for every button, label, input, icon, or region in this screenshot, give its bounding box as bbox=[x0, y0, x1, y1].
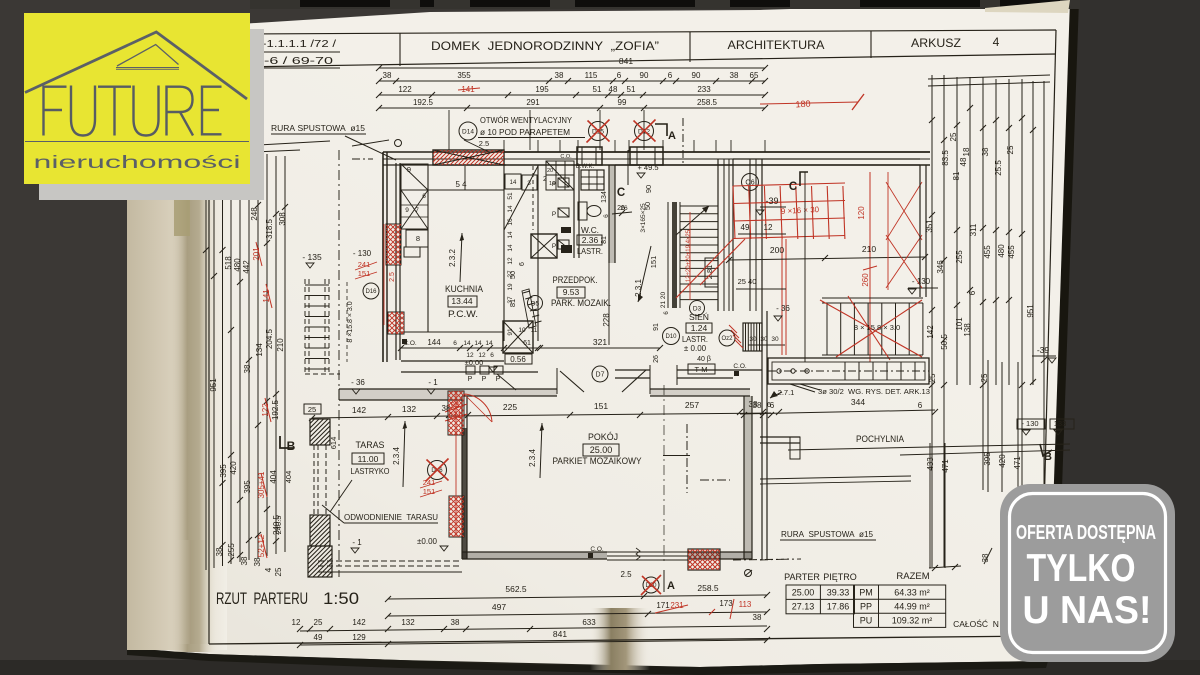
svg-text:20: 20 bbox=[547, 168, 553, 174]
svg-text:318.5: 318.5 bbox=[265, 218, 274, 239]
svg-text:- 130: - 130 bbox=[912, 277, 931, 286]
svg-text:442: 442 bbox=[242, 260, 251, 274]
svg-text:433: 433 bbox=[926, 457, 935, 471]
svg-text:PARKIET MOZAIKOWY: PARKIET MOZAIKOWY bbox=[553, 456, 642, 466]
svg-text:2.5: 2.5 bbox=[389, 272, 396, 282]
svg-text:420: 420 bbox=[998, 454, 1007, 468]
svg-text:RURA SPUSTOWA ø15: RURA SPUSTOWA ø15 bbox=[781, 529, 873, 539]
svg-text:471: 471 bbox=[1013, 456, 1022, 470]
svg-text:90: 90 bbox=[644, 185, 653, 193]
svg-text:192.5: 192.5 bbox=[413, 98, 434, 107]
svg-text:14: 14 bbox=[485, 340, 493, 347]
svg-text:25 40: 25 40 bbox=[738, 277, 757, 286]
svg-text:D10: D10 bbox=[665, 334, 677, 340]
svg-text:nieruchomości: nieruchomości bbox=[34, 152, 241, 172]
svg-text:- 130: - 130 bbox=[1021, 419, 1038, 428]
svg-text:395: 395 bbox=[219, 464, 228, 478]
svg-text:64.33 m²: 64.33 m² bbox=[894, 588, 930, 598]
svg-text:132: 132 bbox=[401, 618, 415, 627]
svg-text:951: 951 bbox=[209, 378, 218, 392]
svg-text:RAZEM: RAZEM bbox=[896, 571, 929, 582]
svg-text:POKÓJ: POKÓJ bbox=[588, 432, 618, 443]
svg-text:83.5: 83.5 bbox=[941, 150, 950, 166]
svg-text:16: 16 bbox=[507, 218, 514, 226]
svg-text:⌜-1.1.1.1 /72 /: ⌜-1.1.1.1 /72 / bbox=[256, 39, 336, 50]
svg-text:C.O.: C.O. bbox=[590, 546, 604, 553]
svg-text:120: 120 bbox=[857, 206, 866, 220]
svg-text:455: 455 bbox=[1007, 245, 1016, 259]
svg-text:P.C.W.: P.C.W. bbox=[448, 309, 478, 319]
svg-text:OTWÓR WENTYLACYJNY: OTWÓR WENTYLACYJNY bbox=[480, 115, 572, 125]
svg-text:± 0.00: ± 0.00 bbox=[684, 344, 707, 353]
svg-text:- 135: - 135 bbox=[302, 252, 322, 262]
svg-text:841: 841 bbox=[553, 629, 567, 639]
svg-text:- 130: - 130 bbox=[353, 249, 372, 258]
svg-text:49: 49 bbox=[314, 633, 323, 642]
svg-text:6: 6 bbox=[453, 340, 457, 347]
svg-text:14: 14 bbox=[474, 340, 482, 347]
svg-text:D7: D7 bbox=[596, 372, 605, 379]
svg-text:25: 25 bbox=[274, 567, 283, 576]
svg-text:173: 173 bbox=[719, 599, 733, 608]
svg-text:228: 228 bbox=[602, 313, 611, 327]
svg-text:195: 195 bbox=[535, 85, 549, 94]
svg-text:38: 38 bbox=[253, 557, 262, 566]
svg-text:±0.00: ±0.00 bbox=[417, 537, 438, 546]
svg-text:38: 38 bbox=[451, 618, 460, 627]
svg-text:132: 132 bbox=[402, 404, 416, 414]
svg-text:6: 6 bbox=[422, 193, 426, 200]
svg-text:204.5: 204.5 bbox=[265, 328, 274, 349]
svg-text:344: 344 bbox=[851, 397, 865, 407]
svg-text:P: P bbox=[552, 243, 556, 250]
svg-text:258.5: 258.5 bbox=[697, 583, 719, 593]
svg-text:38: 38 bbox=[240, 556, 249, 565]
svg-text:248: 248 bbox=[250, 207, 259, 221]
svg-text:25: 25 bbox=[949, 132, 958, 141]
svg-text:POCHYLNIA: POCHYLNIA bbox=[856, 434, 904, 444]
svg-text:65: 65 bbox=[750, 71, 759, 80]
svg-text:P: P bbox=[482, 376, 487, 383]
svg-text:133: 133 bbox=[1054, 419, 1067, 428]
svg-text:38: 38 bbox=[243, 364, 252, 373]
svg-text:RZUT PARTERU: RZUT PARTERU bbox=[216, 589, 308, 608]
svg-text:U NAS!: U NAS! bbox=[1023, 589, 1152, 632]
svg-text:257: 257 bbox=[685, 400, 699, 410]
svg-text:- 1: - 1 bbox=[352, 538, 362, 547]
svg-text:14: 14 bbox=[507, 244, 514, 252]
svg-text:8: 8 bbox=[416, 234, 420, 243]
svg-text:14: 14 bbox=[463, 340, 471, 347]
svg-text:255: 255 bbox=[227, 543, 236, 557]
svg-text:0.56: 0.56 bbox=[510, 355, 526, 364]
svg-text:9: 9 bbox=[405, 207, 409, 214]
svg-text:12: 12 bbox=[292, 618, 301, 627]
svg-text:25: 25 bbox=[1006, 145, 1015, 154]
svg-text:PM: PM bbox=[859, 588, 873, 598]
svg-text:-39: -39 bbox=[765, 196, 778, 206]
svg-text:48: 48 bbox=[959, 157, 968, 166]
svg-text:TYLKO: TYLKO bbox=[1027, 547, 1136, 590]
svg-text:RURA SPUSTOWA ø15: RURA SPUSTOWA ø15 bbox=[271, 123, 365, 133]
svg-text:A: A bbox=[667, 580, 675, 592]
svg-text:- 36: - 36 bbox=[776, 304, 790, 313]
svg-text:TARAS: TARAS bbox=[356, 440, 385, 450]
svg-text:CAŁOŚĆ N: CAŁOŚĆ N bbox=[953, 618, 999, 629]
svg-text:B: B bbox=[287, 439, 296, 453]
svg-text:134: 134 bbox=[601, 191, 608, 203]
svg-text:4: 4 bbox=[993, 35, 1000, 49]
svg-text:38: 38 bbox=[749, 400, 758, 409]
svg-text:2.3.2: 2.3.2 bbox=[448, 249, 457, 267]
svg-text:241: 241 bbox=[423, 478, 436, 487]
svg-text:25: 25 bbox=[308, 405, 316, 414]
svg-text:129: 129 bbox=[352, 633, 366, 642]
svg-text:2.36: 2.36 bbox=[582, 235, 599, 245]
svg-text:14: 14 bbox=[549, 181, 555, 187]
svg-text:109.32 m²: 109.32 m² bbox=[892, 616, 933, 626]
svg-text:471: 471 bbox=[941, 459, 950, 473]
svg-text:291: 291 bbox=[526, 98, 540, 107]
svg-text:18: 18 bbox=[962, 147, 971, 156]
svg-text:51: 51 bbox=[593, 85, 602, 94]
svg-text:151: 151 bbox=[594, 401, 608, 411]
svg-text:D3: D3 bbox=[693, 305, 702, 312]
svg-text:151: 151 bbox=[358, 269, 371, 278]
svg-text:6: 6 bbox=[617, 71, 622, 80]
svg-text:PARK. MOZAIK.: PARK. MOZAIK. bbox=[551, 298, 611, 308]
svg-text:210: 210 bbox=[862, 244, 876, 254]
svg-text:14: 14 bbox=[507, 231, 514, 239]
svg-text:3×165×25: 3×165×25 bbox=[640, 203, 647, 233]
svg-text:12÷20+20+19.4×25: 12÷20+20+19.4×25 bbox=[686, 229, 692, 282]
svg-text:171: 171 bbox=[656, 601, 670, 610]
svg-text:12: 12 bbox=[764, 223, 773, 232]
svg-text:ø 10 POD PARAPETEM: ø 10 POD PARAPETEM bbox=[480, 127, 570, 137]
svg-text:518: 518 bbox=[224, 256, 233, 270]
svg-text:480: 480 bbox=[233, 258, 242, 272]
svg-text:40 β: 40 β bbox=[697, 356, 711, 363]
svg-text:480: 480 bbox=[997, 244, 1006, 258]
svg-text:44.99 m²: 44.99 m² bbox=[894, 602, 930, 612]
svg-text:2.3.4: 2.3.4 bbox=[392, 447, 401, 465]
svg-text:497: 497 bbox=[492, 602, 506, 612]
svg-text:OFERTA DOSTĘPNA: OFERTA DOSTĘPNA bbox=[1016, 522, 1156, 544]
svg-text:115: 115 bbox=[585, 71, 598, 80]
svg-text:±0.00: ±0.00 bbox=[465, 358, 484, 367]
svg-text:61: 61 bbox=[523, 340, 531, 347]
svg-text:81: 81 bbox=[952, 171, 961, 180]
svg-text:51: 51 bbox=[507, 192, 514, 200]
svg-text:240.5: 240.5 bbox=[274, 516, 283, 535]
svg-text:38: 38 bbox=[753, 613, 762, 622]
svg-text:138: 138 bbox=[963, 323, 972, 337]
svg-text:142: 142 bbox=[352, 405, 366, 415]
svg-text:2.5: 2.5 bbox=[479, 139, 489, 148]
svg-text:99: 99 bbox=[618, 98, 627, 107]
svg-text:90: 90 bbox=[692, 71, 701, 80]
svg-text:KUCHNIA: KUCHNIA bbox=[445, 284, 483, 294]
svg-text:395: 395 bbox=[243, 480, 252, 494]
svg-text:38: 38 bbox=[383, 71, 392, 80]
svg-text:12: 12 bbox=[507, 257, 514, 265]
svg-text:38: 38 bbox=[555, 71, 564, 80]
svg-text:6: 6 bbox=[767, 400, 771, 409]
svg-text:30: 30 bbox=[771, 336, 779, 343]
svg-text:200: 200 bbox=[770, 245, 784, 255]
svg-text:25.5: 25.5 bbox=[994, 160, 1003, 176]
svg-text:395: 395 bbox=[983, 452, 992, 466]
svg-text:38: 38 bbox=[215, 547, 224, 556]
svg-text:311: 311 bbox=[969, 223, 978, 236]
svg-text:P: P bbox=[468, 376, 473, 383]
svg-text:11: 11 bbox=[531, 327, 538, 334]
svg-text:1:50: 1:50 bbox=[323, 589, 359, 608]
svg-text:50.5: 50.5 bbox=[940, 334, 949, 350]
svg-text:91: 91 bbox=[653, 323, 660, 331]
svg-text:2.3.4: 2.3.4 bbox=[528, 449, 537, 467]
svg-text:PP: PP bbox=[860, 602, 872, 612]
svg-text:404: 404 bbox=[269, 470, 278, 484]
svg-text:9.53: 9.53 bbox=[563, 287, 580, 297]
svg-text:6: 6 bbox=[968, 290, 977, 295]
svg-text:142: 142 bbox=[352, 618, 366, 627]
svg-text:355: 355 bbox=[457, 71, 471, 80]
svg-text:LASTR.: LASTR. bbox=[682, 335, 708, 344]
svg-text:180: 180 bbox=[795, 98, 811, 109]
svg-text:19: 19 bbox=[507, 283, 514, 291]
svg-text:4: 4 bbox=[264, 567, 273, 572]
svg-text:C.O.: C.O. bbox=[733, 363, 747, 370]
svg-text:C: C bbox=[617, 187, 625, 199]
svg-text:241: 241 bbox=[358, 260, 371, 269]
svg-text:260: 260 bbox=[861, 273, 870, 287]
svg-text:26: 26 bbox=[653, 355, 660, 363]
svg-text:PU: PU bbox=[860, 616, 873, 626]
svg-text:25.00: 25.00 bbox=[792, 588, 815, 598]
svg-text:951: 951 bbox=[1026, 304, 1035, 318]
svg-text:DOMEK JEDNORODZINNY „ZOFIA”: DOMEK JEDNORODZINNY „ZOFIA” bbox=[431, 39, 659, 53]
svg-text:151: 151 bbox=[649, 256, 658, 269]
svg-text:81: 81 bbox=[508, 299, 517, 307]
svg-text:PIĘTRO: PIĘTRO bbox=[823, 572, 857, 582]
svg-text:38: 38 bbox=[730, 71, 739, 80]
svg-text:PRZEDPOK.: PRZEDPOK. bbox=[553, 275, 598, 285]
svg-text:50: 50 bbox=[508, 271, 517, 279]
svg-text:210: 210 bbox=[276, 338, 285, 352]
svg-text:321: 321 bbox=[593, 337, 607, 347]
svg-text:134: 134 bbox=[255, 343, 264, 357]
svg-text:455: 455 bbox=[983, 245, 992, 259]
svg-text:225: 225 bbox=[503, 402, 517, 412]
svg-text:8 ×15.8 × 3.0: 8 ×15.8 × 3.0 bbox=[347, 301, 354, 342]
svg-text:- 1: - 1 bbox=[428, 378, 438, 387]
svg-text:25: 25 bbox=[314, 618, 323, 627]
svg-text:+ 49.5: + 49.5 bbox=[637, 163, 658, 172]
svg-text:122: 122 bbox=[398, 85, 412, 94]
svg-text:- 36: - 36 bbox=[351, 378, 365, 387]
svg-text:17.86: 17.86 bbox=[827, 602, 850, 612]
svg-text:27.13: 27.13 bbox=[792, 602, 815, 612]
svg-text:1.24: 1.24 bbox=[691, 323, 708, 333]
svg-text:113: 113 bbox=[739, 600, 752, 609]
svg-text:13.44: 13.44 bbox=[451, 296, 473, 306]
svg-text:2-6 / 69-70: 2-6 / 69-70 bbox=[255, 55, 333, 67]
svg-text:21 20: 21 20 bbox=[660, 291, 667, 308]
svg-text:7: 7 bbox=[415, 207, 419, 214]
svg-text:258.5: 258.5 bbox=[697, 98, 718, 107]
svg-text:3ø 30/2 WG. RYS. DET. ARK.13: 3ø 30/2 WG. RYS. DET. ARK.13 bbox=[818, 387, 930, 396]
svg-text:6: 6 bbox=[918, 401, 923, 410]
svg-text:C: C bbox=[789, 181, 797, 193]
svg-text:26: 26 bbox=[620, 205, 628, 212]
svg-text:2.5: 2.5 bbox=[620, 570, 632, 579]
svg-text:48: 48 bbox=[609, 85, 618, 94]
svg-text:C.O.: C.O. bbox=[560, 154, 572, 160]
svg-text:255: 255 bbox=[955, 250, 964, 264]
svg-text:P: P bbox=[552, 211, 556, 218]
svg-text:30: 30 bbox=[749, 336, 757, 343]
svg-text:-39: -39 bbox=[1037, 345, 1050, 355]
svg-text:6: 6 bbox=[668, 71, 673, 80]
svg-text:151: 151 bbox=[423, 487, 436, 496]
svg-text:38: 38 bbox=[981, 147, 990, 156]
svg-text:LASTR.: LASTR. bbox=[577, 247, 603, 256]
svg-text:91: 91 bbox=[507, 328, 514, 336]
svg-text:6: 6 bbox=[519, 262, 526, 266]
svg-text:PARTER: PARTER bbox=[784, 572, 820, 582]
svg-text:10: 10 bbox=[518, 327, 526, 334]
svg-text:142: 142 bbox=[926, 325, 935, 339]
svg-text:25.00: 25.00 bbox=[590, 445, 613, 455]
svg-text:Oz2: Oz2 bbox=[721, 336, 733, 342]
svg-text:14: 14 bbox=[507, 205, 514, 213]
svg-text:D16: D16 bbox=[365, 289, 377, 295]
svg-text:841: 841 bbox=[619, 56, 633, 66]
svg-text:614: 614 bbox=[329, 437, 338, 450]
svg-text:D14: D14 bbox=[462, 128, 474, 135]
svg-text:49: 49 bbox=[741, 223, 750, 232]
svg-text:51: 51 bbox=[627, 85, 636, 94]
svg-text:81: 81 bbox=[601, 236, 608, 244]
svg-text:633: 633 bbox=[582, 618, 596, 627]
svg-text:8 × 15.8 × 3.0: 8 × 15.8 × 3.0 bbox=[854, 323, 900, 332]
svg-text:420: 420 bbox=[229, 461, 238, 475]
svg-text:90: 90 bbox=[640, 71, 649, 80]
svg-text:233: 233 bbox=[697, 85, 711, 94]
svg-text:192.5: 192.5 bbox=[271, 399, 280, 420]
svg-text:144: 144 bbox=[427, 338, 441, 347]
svg-text:W.C.: W.C. bbox=[581, 225, 599, 235]
svg-text:39.33: 39.33 bbox=[827, 588, 850, 598]
svg-text:404: 404 bbox=[284, 471, 293, 484]
svg-text:346: 346 bbox=[936, 260, 945, 274]
svg-text:ARCHITEKTURA: ARCHITEKTURA bbox=[728, 38, 825, 52]
svg-text:LASTRYKO: LASTRYKO bbox=[351, 466, 390, 476]
svg-text:6: 6 bbox=[490, 352, 494, 359]
svg-text:308: 308 bbox=[278, 212, 287, 226]
svg-text:14: 14 bbox=[510, 180, 517, 186]
svg-text:A: A bbox=[668, 130, 676, 142]
svg-text:ODWODNIENIE TARASU: ODWODNIENIE TARASU bbox=[344, 512, 438, 522]
svg-text:11.00: 11.00 bbox=[358, 454, 379, 464]
svg-text:562.5: 562.5 bbox=[505, 584, 527, 594]
svg-text:ARKUSZ: ARKUSZ bbox=[911, 36, 961, 50]
svg-text:B.W.K.: B.W.K. bbox=[576, 164, 595, 170]
